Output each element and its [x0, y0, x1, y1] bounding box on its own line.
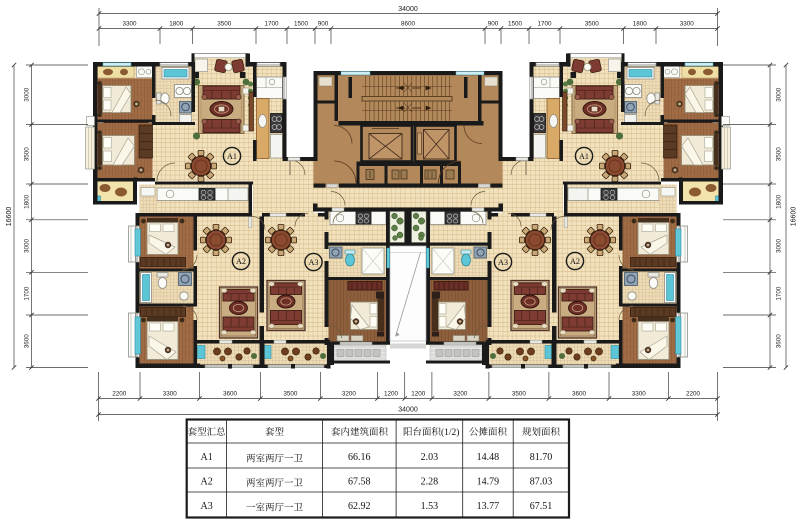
svg-text:900: 900 — [488, 21, 499, 28]
svg-text:A3: A3 — [498, 258, 508, 267]
svg-text:8600: 8600 — [401, 21, 416, 28]
svg-text:2.28: 2.28 — [421, 477, 439, 488]
svg-text:13.77: 13.77 — [477, 501, 500, 512]
svg-text:1200: 1200 — [411, 391, 426, 398]
svg-text:14.79: 14.79 — [477, 477, 500, 488]
svg-text:16600: 16600 — [6, 207, 13, 227]
svg-text:1500: 1500 — [294, 21, 309, 28]
svg-text:87.03: 87.03 — [530, 477, 553, 488]
svg-text:1800: 1800 — [776, 194, 783, 209]
svg-text:3000: 3000 — [776, 239, 783, 254]
svg-text:3500: 3500 — [776, 147, 783, 162]
svg-text:2200: 2200 — [686, 391, 701, 398]
svg-text:3500: 3500 — [217, 21, 232, 28]
svg-text:1700: 1700 — [264, 21, 279, 28]
svg-text:3500: 3500 — [585, 21, 600, 28]
svg-text:1500: 1500 — [508, 21, 523, 28]
svg-text:A2: A2 — [236, 257, 246, 266]
svg-text:1.53: 1.53 — [421, 501, 439, 512]
svg-text:81.70: 81.70 — [530, 452, 553, 463]
svg-text:66.16: 66.16 — [348, 452, 371, 463]
svg-text:3200: 3200 — [453, 391, 468, 398]
svg-text:1200: 1200 — [384, 391, 399, 398]
svg-text:1800: 1800 — [169, 21, 184, 28]
svg-text:67.58: 67.58 — [348, 477, 371, 488]
svg-text:34000: 34000 — [398, 407, 418, 414]
svg-text:62.92: 62.92 — [348, 501, 371, 512]
svg-text:3500: 3500 — [24, 147, 31, 162]
svg-text:3000: 3000 — [24, 87, 31, 102]
svg-text:3000: 3000 — [776, 87, 783, 102]
svg-text:(1/2): (1/2) — [441, 427, 459, 438]
svg-text:A2: A2 — [200, 477, 212, 488]
svg-text:3300: 3300 — [632, 391, 647, 398]
svg-text:1800: 1800 — [633, 21, 648, 28]
svg-text:A1: A1 — [579, 152, 589, 161]
svg-text:1700: 1700 — [24, 286, 31, 301]
svg-text:3600: 3600 — [24, 334, 31, 349]
svg-text:1700: 1700 — [776, 286, 783, 301]
svg-text:67.51: 67.51 — [530, 501, 553, 512]
svg-text:3200: 3200 — [342, 391, 357, 398]
svg-text:14.48: 14.48 — [477, 452, 500, 463]
svg-text:16600: 16600 — [791, 207, 798, 227]
svg-text:3000: 3000 — [24, 239, 31, 254]
svg-text:2200: 2200 — [112, 391, 127, 398]
svg-text:900: 900 — [318, 21, 329, 28]
svg-text:1800: 1800 — [24, 194, 31, 209]
svg-text:34000: 34000 — [398, 6, 418, 13]
svg-text:1700: 1700 — [537, 21, 552, 28]
svg-text:A3: A3 — [308, 258, 318, 267]
svg-text:3500: 3500 — [283, 391, 298, 398]
svg-text:A1: A1 — [227, 152, 237, 161]
svg-text:A1: A1 — [200, 452, 212, 463]
svg-text:A3: A3 — [200, 501, 212, 512]
svg-text:3500: 3500 — [512, 391, 527, 398]
svg-text:3300: 3300 — [680, 21, 695, 28]
svg-text:3600: 3600 — [572, 391, 587, 398]
svg-text:2.03: 2.03 — [421, 452, 439, 463]
svg-text:3600: 3600 — [776, 334, 783, 349]
svg-text:3300: 3300 — [122, 21, 137, 28]
svg-text:3600: 3600 — [223, 391, 238, 398]
svg-text:A2: A2 — [570, 257, 580, 266]
svg-text:3300: 3300 — [163, 391, 178, 398]
